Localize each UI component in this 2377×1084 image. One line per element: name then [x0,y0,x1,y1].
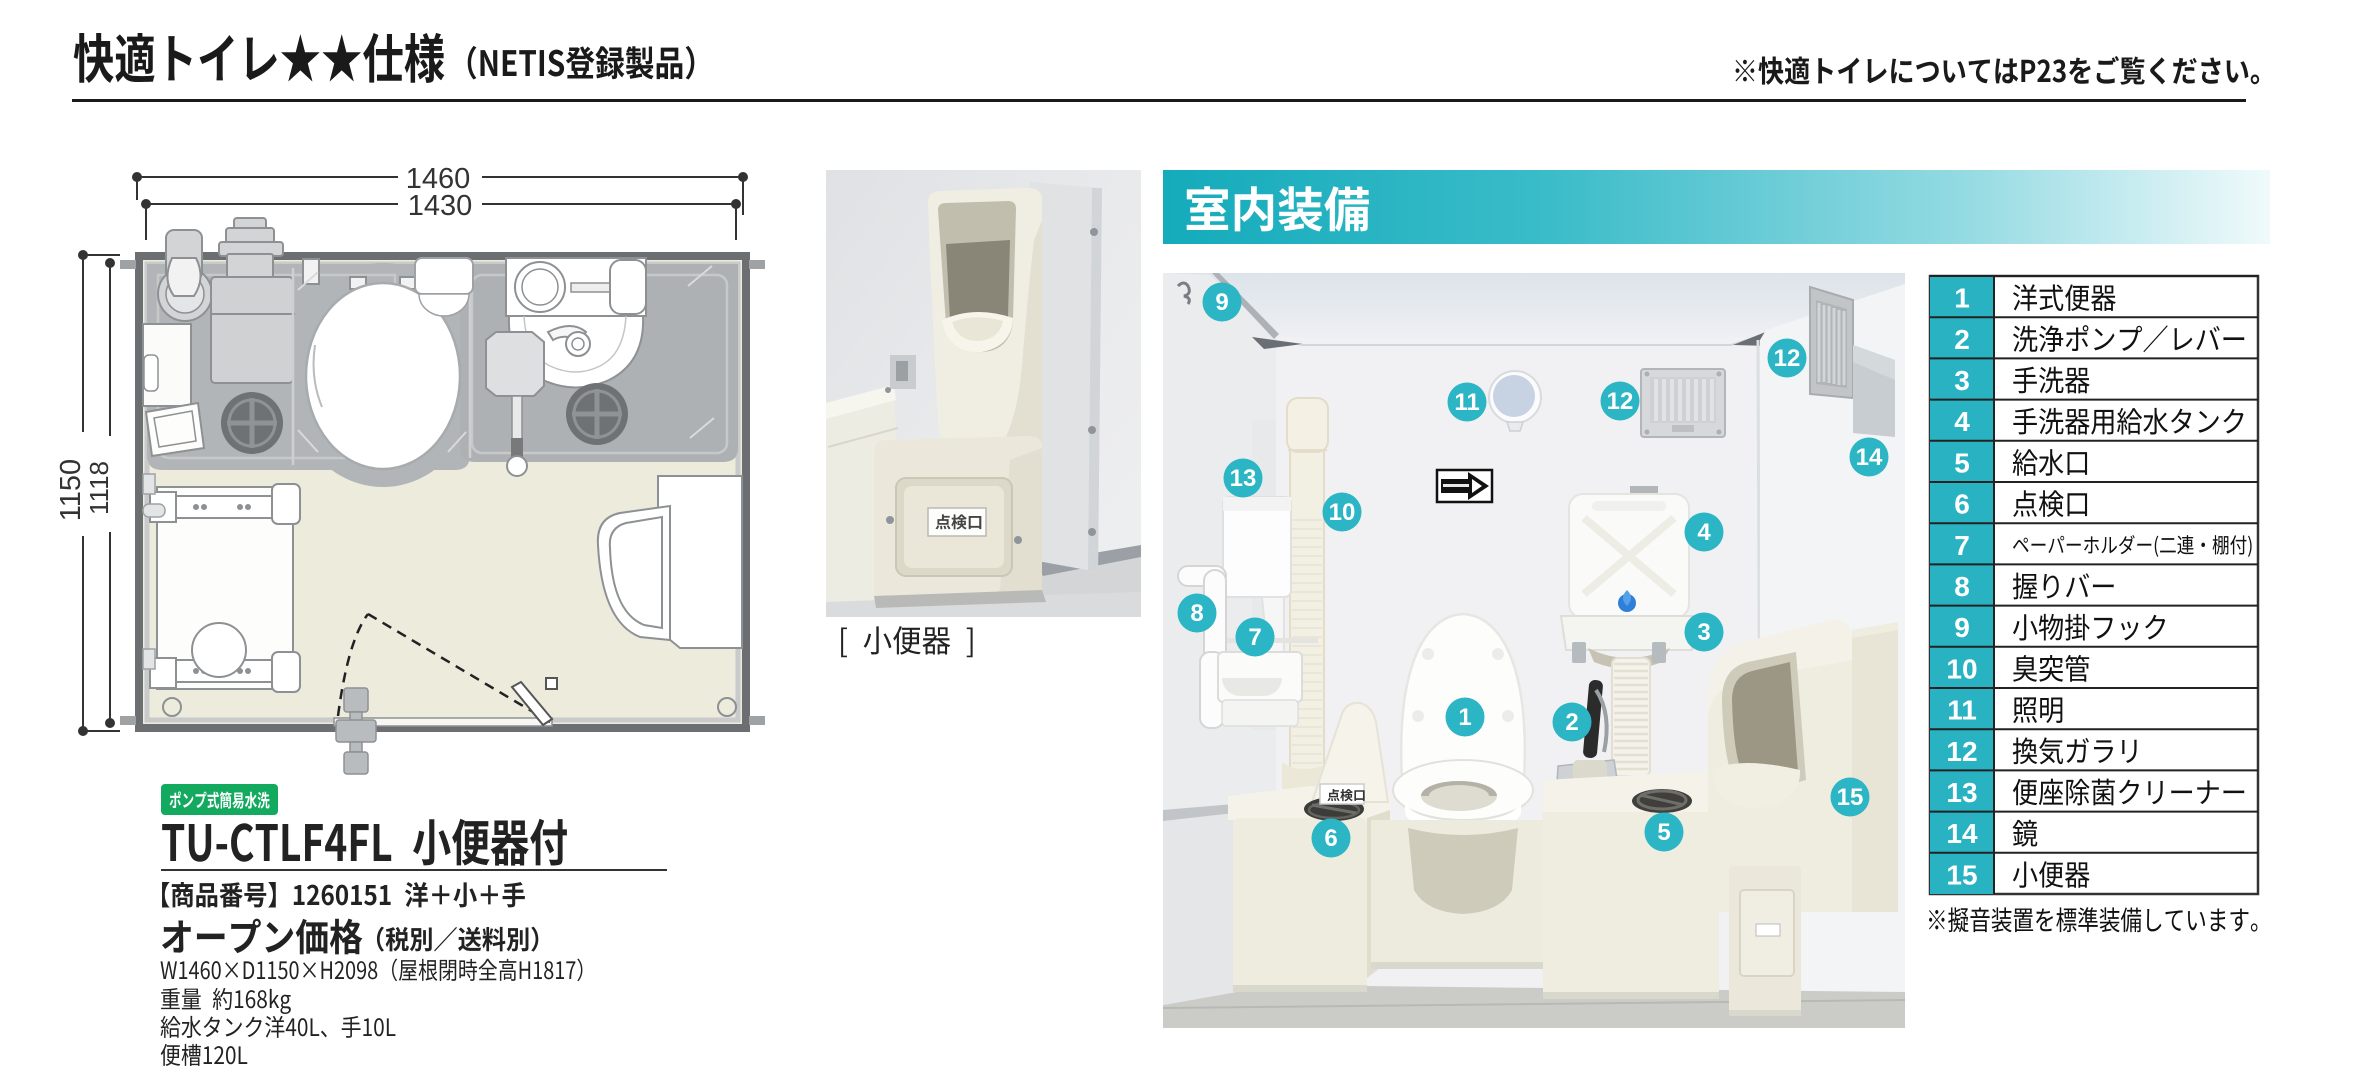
svg-text:12: 12 [1774,345,1801,372]
svg-text:2: 2 [1954,324,1970,355]
svg-text:8: 8 [1190,600,1203,627]
svg-text:11: 11 [1947,695,1977,726]
svg-text:14: 14 [1856,444,1883,471]
svg-text:3: 3 [1954,365,1970,396]
svg-text:11: 11 [1454,389,1479,416]
svg-text:3: 3 [1697,619,1710,646]
svg-text:10: 10 [1946,653,1977,684]
svg-text:5: 5 [1657,819,1670,846]
svg-text:1118: 1118 [84,461,114,515]
svg-text:15: 15 [1837,784,1864,811]
svg-text:2: 2 [1565,709,1578,736]
svg-text:13: 13 [1946,777,1977,808]
svg-text:8: 8 [1954,571,1970,602]
svg-text:14: 14 [1946,818,1978,849]
svg-text:9: 9 [1954,612,1970,643]
svg-text:6: 6 [1954,489,1970,520]
svg-text:7: 7 [1248,624,1261,651]
svg-text:12: 12 [1946,736,1977,767]
svg-text:9: 9 [1215,289,1228,316]
svg-text:1: 1 [1458,704,1471,731]
svg-text:15: 15 [1946,859,1977,890]
svg-text:4: 4 [1697,519,1711,546]
svg-text:5: 5 [1954,447,1970,478]
svg-text:7: 7 [1954,530,1970,561]
svg-text:6: 6 [1324,825,1337,852]
svg-text:13: 13 [1230,465,1257,492]
svg-text:12: 12 [1607,388,1634,415]
svg-text:1150: 1150 [55,459,87,521]
svg-text:1430: 1430 [408,190,473,222]
svg-text:4: 4 [1954,406,1970,437]
svg-text:1: 1 [1954,283,1970,314]
svg-text:10: 10 [1329,499,1356,526]
